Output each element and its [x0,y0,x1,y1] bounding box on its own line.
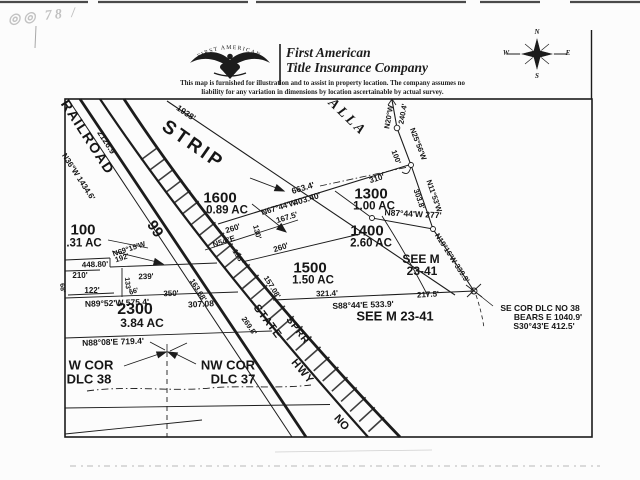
dim-217-5: 217.5' [417,290,439,299]
dim-321-4: 321.4' [316,290,338,299]
road-sprr: SPRR [283,315,310,346]
bearing-n36w-1434-6: N36°W 1434.6' [60,152,96,202]
road-no: NO [331,413,350,433]
dim-158: 158' [231,248,245,264]
map-labels: ALLARAILROAD2126.9'N36°W 1434.6'STRIP193… [0,0,640,480]
dim-269-8: 269.8' [240,315,258,336]
parcel-100-number: 100 [70,223,95,238]
road-99: 99 [144,218,166,240]
road-hwy: HWY [289,357,316,386]
dim-448-80: 448.80' [82,261,109,270]
dim-239: 239' [138,273,154,282]
dim-130: 130' [252,224,263,240]
corner-nw-cor-2: DLC 37 [211,373,256,386]
note-see-m-upper-2: 23-41 [407,265,438,277]
bearing-n11-53w: N11°53'W [425,179,443,213]
dim-157-08: 157.08' [262,275,281,300]
parcel-1600-number: 1600 [203,191,236,206]
bearing-n87-44w-277: N87°44'W 277' [384,208,441,219]
corner-nw-cor-1: NW COR [201,359,255,372]
road-state: STATE [251,303,284,341]
dim-122: 122' [84,287,99,295]
dim-1938: 1938' [175,104,197,123]
bearing-n20w: N20°W [383,105,395,130]
parcel-1400-number: 1400 [350,224,383,239]
note-se-cor-3: S30°43'E 412.5' [513,322,574,331]
dim-167-5: 167.5' [275,211,298,225]
dim-350: 350' [163,290,179,299]
parcel-1400-acreage: 2.60 AC [350,238,392,250]
corner-w-cor-2: DLC 38 [67,373,112,386]
parcel-1500-acreage: 1.50 AC [292,275,334,287]
parcel-2300-acreage: 3.84 AC [120,317,164,329]
note-see-m-lower: SEE M 23-41 [356,310,433,323]
dim-260-lower: 260' [273,242,290,254]
dim-310: 310' [369,173,386,185]
dim-68: 68' [58,283,66,293]
dim-192: 192' [114,252,130,264]
parcel-100-acreage: .31 AC [66,238,101,250]
dim-66: 66' [128,287,139,297]
bearing-n88-08e-719-4: N88°08'E 719.4' [82,337,144,348]
dim-100ft: 100' [390,149,402,165]
scanned-map-page: { "colors": { "ink": "#1c1c1c", "paper":… [0,0,640,480]
label-strip: STRIP [158,117,227,173]
parcel-1300-number: 1300 [354,187,387,202]
dim-210: 210' [72,272,87,280]
bearing-n25-56w: N25°56'W [408,127,427,161]
dim-307-08: 307.08' [188,299,216,309]
street-alla: ALLA [325,96,369,139]
dim-240-4: 240.4' [398,103,409,125]
parcel-1600-acreage: 0.89 AC [206,205,248,217]
parcel-1500-number: 1500 [293,261,326,276]
corner-w-cor-1: W COR [69,359,114,372]
dim-303-8: 303.8' [412,188,426,210]
bearing-n54e: N54°E [212,235,237,250]
